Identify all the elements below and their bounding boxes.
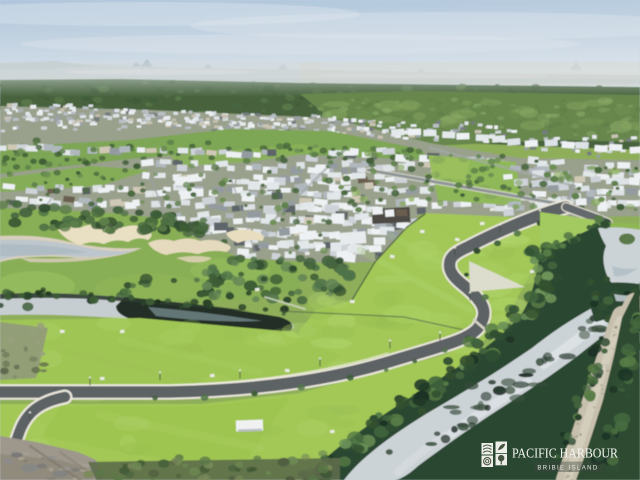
svg-text:PACIFIC HARBOUR: PACIFIC HARBOUR xyxy=(512,447,619,462)
svg-text:BRIBIE ISLAND: BRIBIE ISLAND xyxy=(537,466,598,472)
